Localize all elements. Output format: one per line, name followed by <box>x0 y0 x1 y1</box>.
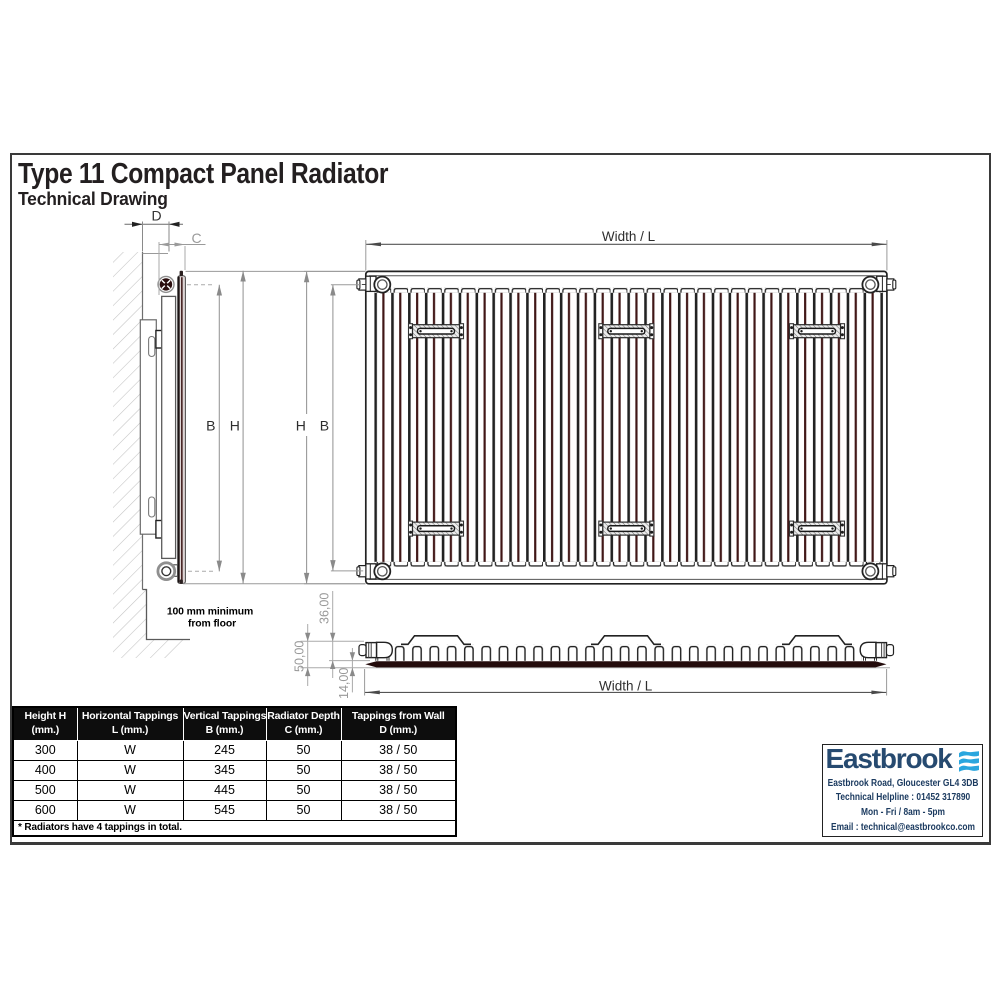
svg-text:C: C <box>191 230 201 246</box>
svg-text:from floor: from floor <box>188 619 236 630</box>
svg-text:B: B <box>320 417 329 433</box>
svg-text:36,00: 36,00 <box>318 593 332 624</box>
svg-text:B: B <box>206 417 215 433</box>
svg-text:Width / L: Width / L <box>599 679 653 694</box>
svg-text:14,00: 14,00 <box>337 668 351 699</box>
svg-text:50,00: 50,00 <box>293 641 307 672</box>
svg-text:H: H <box>230 417 240 433</box>
svg-text:100 mm minimum: 100 mm minimum <box>167 607 253 618</box>
svg-text:Width / L: Width / L <box>602 229 656 244</box>
svg-text:H: H <box>296 417 306 433</box>
svg-text:D: D <box>151 208 161 224</box>
